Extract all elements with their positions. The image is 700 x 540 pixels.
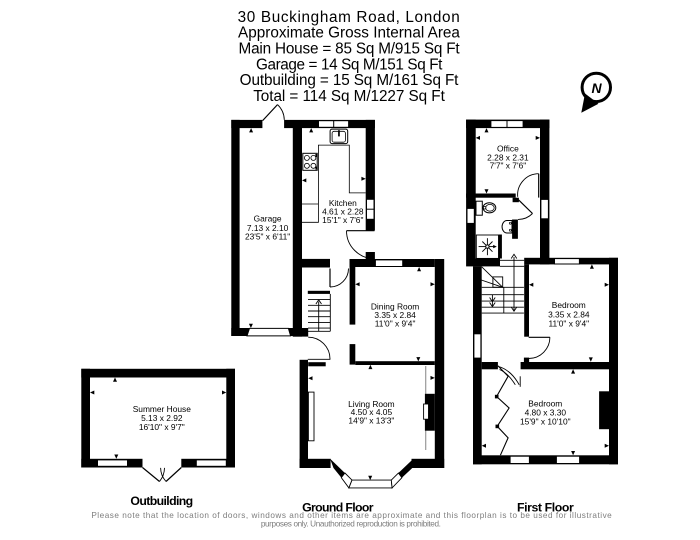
svg-text:23'5" x 6'11": 23'5" x 6'11" — [245, 232, 290, 242]
svg-text:Outbuilding: Outbuilding — [130, 494, 192, 508]
svg-text:purposes only. Unauthorized re: purposes only. Unauthorized reproduction… — [261, 520, 441, 529]
svg-text:14'9" x 13'3": 14'9" x 13'3" — [348, 416, 394, 426]
svg-text:N: N — [591, 80, 602, 96]
svg-text:11'0" x 9'4": 11'0" x 9'4" — [375, 318, 416, 328]
svg-text:16'10" x 9'7": 16'10" x 9'7" — [139, 422, 185, 432]
svg-text:7'7" x 7'6": 7'7" x 7'6" — [490, 161, 527, 171]
svg-text:Total = 114 Sq M/1227 Sq Ft: Total = 114 Sq M/1227 Sq Ft — [253, 88, 445, 105]
svg-text:Outbuilding = 15 Sq M/161 Sq F: Outbuilding = 15 Sq M/161 Sq Ft — [240, 72, 460, 89]
svg-text:15'9" x 10'10": 15'9" x 10'10" — [520, 417, 571, 427]
svg-text:Main House = 85 Sq M/915 Sq Ft: Main House = 85 Sq M/915 Sq Ft — [239, 41, 461, 58]
svg-text:Garage = 14 Sq M/151 Sq Ft: Garage = 14 Sq M/151 Sq Ft — [256, 56, 443, 73]
svg-text:30 Buckingham Road, London: 30 Buckingham Road, London — [238, 9, 461, 26]
svg-text:Approximate Gross Internal Are: Approximate Gross Internal Area — [238, 25, 460, 42]
svg-text:11'0" x 9'4": 11'0" x 9'4" — [548, 318, 589, 328]
svg-text:Please note that the location: Please note that the location of doors, … — [91, 511, 612, 520]
svg-text:15'1" x 7'6": 15'1" x 7'6" — [322, 215, 363, 225]
